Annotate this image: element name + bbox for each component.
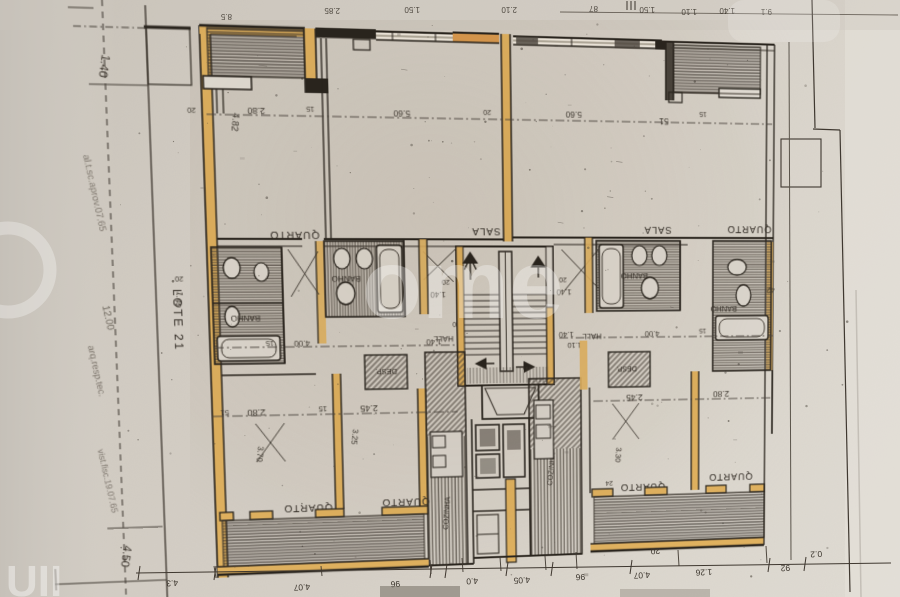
svg-text:0.2: 0.2 — [810, 549, 823, 560]
svg-text:UII: UII — [6, 557, 62, 597]
svg-text:1.50: 1.50 — [404, 5, 420, 14]
svg-text:20: 20 — [650, 546, 660, 556]
svg-text:4.0: 4.0 — [466, 576, 479, 587]
svg-text:96: 96 — [575, 572, 585, 582]
svg-text:92: 92 — [780, 563, 790, 573]
svg-text:8.5: 8.5 — [220, 12, 232, 21]
svg-text:2.10: 2.10 — [501, 5, 517, 14]
svg-text:87: 87 — [589, 4, 598, 13]
svg-text:ome: ome — [362, 229, 564, 339]
svg-text:4.3: 4.3 — [166, 578, 179, 589]
svg-text:4.05: 4.05 — [513, 575, 530, 586]
svg-text:1.10: 1.10 — [681, 7, 697, 16]
svg-text:4.07: 4.07 — [633, 570, 650, 581]
svg-text:4.07: 4.07 — [293, 582, 310, 593]
svg-text:1.26: 1.26 — [695, 567, 712, 578]
svg-text:2.85: 2.85 — [324, 6, 340, 15]
svg-text:1.50: 1.50 — [639, 5, 655, 14]
